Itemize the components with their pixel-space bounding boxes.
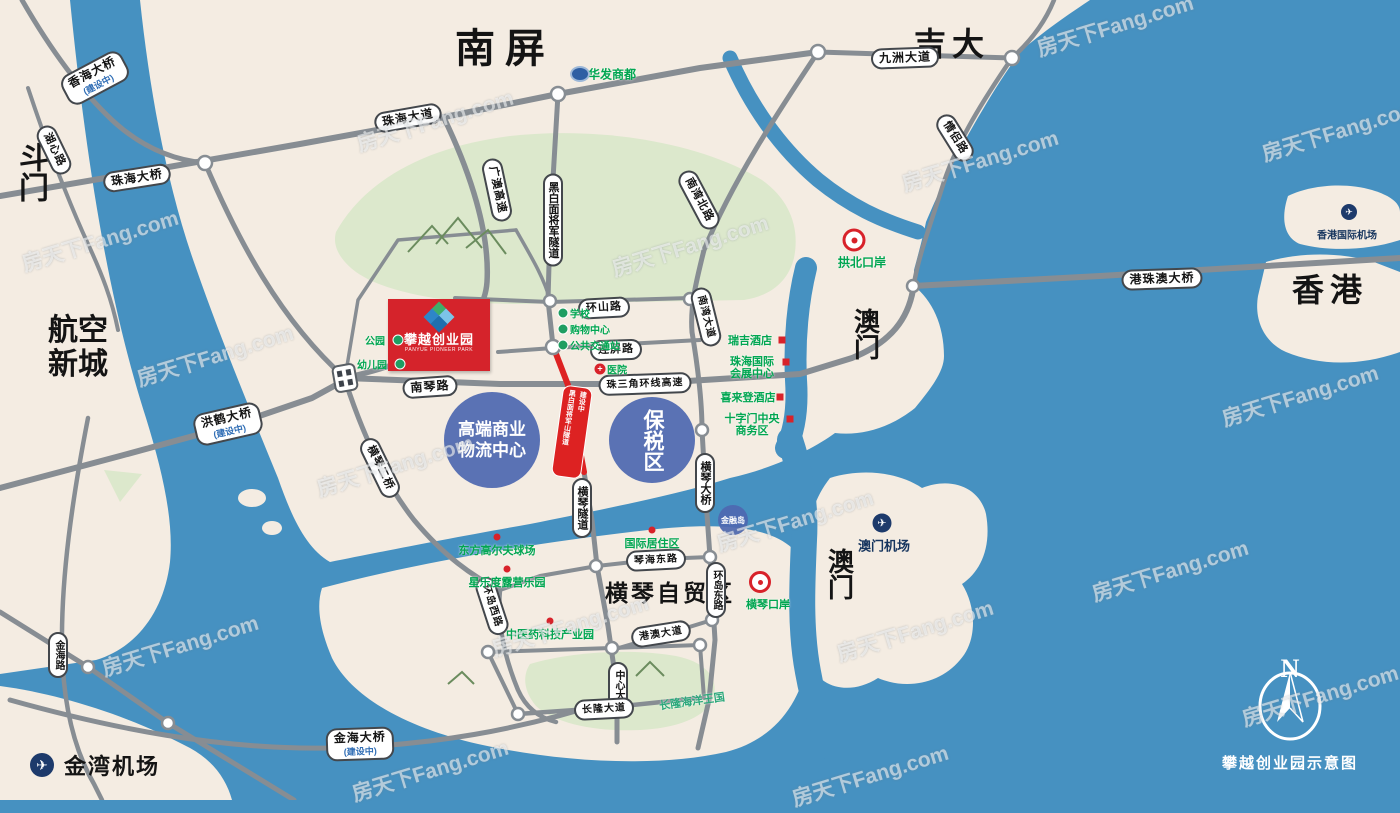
area-label-macau-south: 澳门 [822,548,859,600]
gongbei-port-icon [843,229,866,252]
road-pill-hengqin-tunnel: 横琴隧道 [572,478,592,538]
poi-marker [779,337,786,344]
area-label-hongkong: 香港 [1292,265,1368,311]
road-pill-jinhai-bridge: 金海大桥(建设中) [325,726,394,761]
jinwan-airport-icon: ✈ [30,753,54,777]
hk-airport-icon: ✈ [1341,204,1357,220]
poi-marker [504,566,511,573]
islet [262,521,282,535]
zone-text: 保税区 [637,409,667,472]
road-pill-jiuzhou-avenue: 九洲大道 [871,46,940,69]
zone-bonded-area: 保税区 [609,397,695,483]
poi-transit-station: 公共交通站 [570,338,620,353]
poi-marker [787,416,794,423]
poi-marker [777,394,784,401]
poi-stregis-hotel: 瑞吉酒店 [728,332,772,348]
poi-marker [649,527,656,534]
huafa-mall-icon [570,66,590,82]
project-name: 攀越创业园 [404,333,474,347]
road-pill-text: 金海大桥 [334,730,386,746]
poi-marker [547,618,554,625]
poi-tcm-science-park: 中医药科技产业园 [506,626,594,642]
road-pill-heibaimian-tunnel: 黑白面将军隧道 [543,174,563,267]
poi-school: 学校 [570,306,590,321]
transit-station-icon [558,340,569,351]
hospital-icon: + [595,364,606,375]
zone-logistics-center: 高端商业物流中心 [444,392,540,488]
park-icon [393,335,404,346]
macau-airport-icon: ✈ [873,514,892,533]
poi-marker [494,534,501,541]
road-pill-huandao-east: 环岛东路 [706,562,726,618]
interchange-icon [332,363,358,392]
poi-shopping-center: 购物中心 [570,322,610,337]
schematic-map: 南屏 吉大 斗门 航空新城 香港 澳门 澳门 横琴自贸区 金湾机场 ✈ 澳门机场… [0,0,1400,800]
hengqin-island [319,526,812,761]
poi-shizimen-cbd: 十字门中央商务区 [720,413,784,437]
kindergarten-icon [395,359,406,370]
map-caption: 攀越创业园示意图 [1222,752,1358,773]
school-icon [558,308,569,319]
area-label-jinwan-airport: 金湾机场 [64,749,160,781]
road-pill-note: (建设中) [334,746,386,760]
road-pill-changlong-avenue: 长隆大道 [573,697,634,721]
poi-golf-club: 东方高尔夫球场 [459,542,536,558]
area-label-nanping: 南屏 [455,16,555,74]
islet [238,489,266,507]
poi-marker [783,359,790,366]
poi-huafa-mall: 华发商都 [588,66,636,83]
project-name-en: PANYUE PIONEER PARK [405,347,473,353]
zone-financial-island: 金融岛 [718,505,748,535]
poi-sheraton-hotel: 喜来登酒店 [721,389,776,405]
road-pill-jinhai-road: 金海路 [48,632,68,678]
road-pill-qinhai-east: 琴海东路 [625,548,686,572]
road-pill-hzmb: 港珠澳大桥 [1121,267,1203,291]
shopping-center-icon [558,324,569,335]
poi-intl-residential: 国际居住区 [625,535,680,551]
area-label-hk-airport: 香港国际机场 [1317,227,1377,242]
poi-xingledu-camp: 星乐度露营乐园 [469,574,546,590]
poi-convention-center: 珠海国际会展中心 [726,356,778,380]
zone-text: 金融岛 [721,515,745,526]
road-pill-hengqin-bridge: 横琴大桥 [695,453,715,513]
area-label-macau-north: 澳门 [848,308,885,360]
poi-kindergarten: 幼儿园 [357,357,387,372]
area-label-aviation-new-town: 航空新城 [43,314,113,382]
poi-park: 公园 [365,333,385,348]
poi-hengqin-port: 横琴口岸 [746,596,790,612]
poi-gongbei-port: 拱北口岸 [838,254,886,271]
compass-north-letter: N [1281,654,1300,684]
area-label-macau-airport: 澳门机场 [858,536,910,555]
road-pill-nanqin: 南琴路 [402,375,458,400]
hengqin-port-icon [749,571,771,593]
zone-text: 高端商业 [458,420,526,439]
map-base-layer [0,0,1400,800]
zone-text: 物流中心 [458,441,526,460]
project-logo-icon [426,304,452,330]
poi-hospital: 医院 [607,362,627,377]
